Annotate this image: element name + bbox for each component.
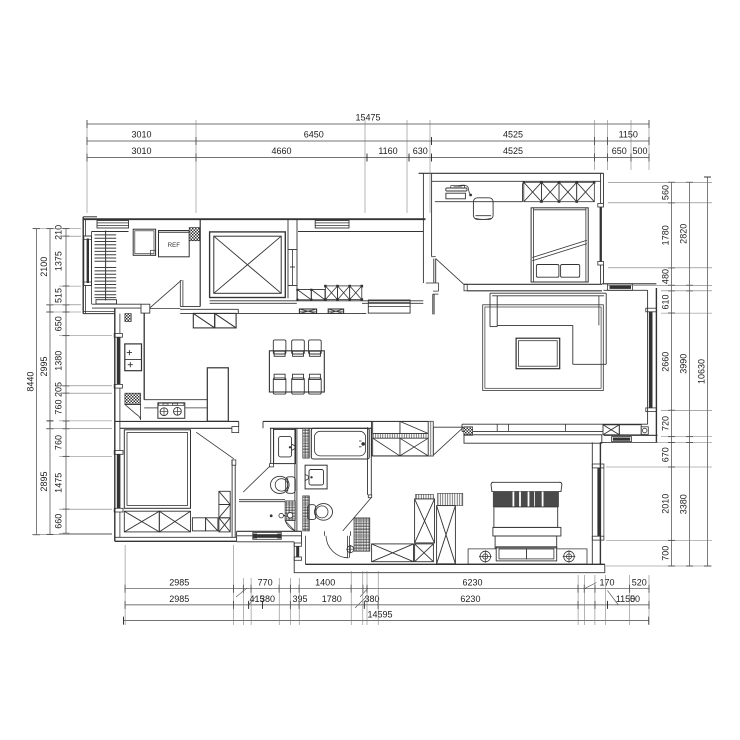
svg-text:700: 700: [661, 546, 671, 561]
svg-text:1150: 1150: [619, 130, 638, 140]
svg-text:3990: 3990: [679, 354, 689, 374]
svg-text:500: 500: [632, 146, 647, 156]
svg-text:170: 170: [599, 578, 614, 588]
svg-text:3380: 3380: [679, 494, 689, 514]
svg-text:1380: 1380: [54, 351, 64, 371]
svg-text:560: 560: [661, 185, 671, 200]
svg-text:1160: 1160: [378, 146, 397, 156]
svg-text:650: 650: [54, 316, 64, 331]
svg-text:670: 670: [661, 447, 671, 462]
svg-text:6230: 6230: [463, 578, 483, 588]
svg-text:15475: 15475: [355, 113, 380, 123]
svg-text:630: 630: [413, 146, 428, 156]
svg-text:4525: 4525: [503, 146, 523, 156]
svg-text:50: 50: [630, 594, 640, 604]
svg-text:1780: 1780: [322, 594, 342, 604]
svg-text:770: 770: [258, 578, 273, 588]
svg-text:10630: 10630: [697, 359, 707, 384]
svg-text:610: 610: [661, 294, 671, 309]
svg-text:1400: 1400: [315, 578, 335, 588]
svg-text:4525: 4525: [503, 130, 523, 140]
svg-text:REF: REF: [168, 242, 181, 249]
svg-text:520: 520: [632, 578, 647, 588]
svg-text:6450: 6450: [304, 130, 324, 140]
svg-text:4660: 4660: [271, 146, 291, 156]
svg-text:650: 650: [612, 146, 627, 156]
svg-text:6230: 6230: [460, 594, 480, 604]
svg-text:3010: 3010: [131, 130, 151, 140]
svg-text:205: 205: [54, 382, 64, 397]
svg-text:14595: 14595: [367, 609, 392, 619]
svg-text:760: 760: [54, 435, 64, 450]
svg-text:2660: 2660: [661, 352, 671, 372]
svg-text:2985: 2985: [169, 578, 189, 588]
svg-text:515: 515: [54, 288, 64, 303]
svg-text:3010: 3010: [131, 146, 151, 156]
svg-text:2995: 2995: [39, 356, 49, 376]
svg-text:8440: 8440: [26, 372, 36, 392]
svg-text:720: 720: [661, 416, 671, 431]
svg-text:395: 395: [292, 594, 307, 604]
svg-text:760: 760: [54, 400, 64, 415]
svg-text:210: 210: [54, 225, 64, 240]
svg-text:1375: 1375: [54, 251, 64, 271]
svg-text:2985: 2985: [169, 594, 189, 604]
svg-text:380: 380: [260, 594, 275, 604]
svg-text:660: 660: [54, 514, 64, 529]
svg-text:480: 480: [661, 269, 671, 284]
svg-text:2895: 2895: [39, 472, 49, 492]
svg-text:2100: 2100: [39, 257, 49, 277]
svg-text:1475: 1475: [54, 473, 64, 493]
svg-text:1780: 1780: [661, 225, 671, 245]
svg-text:2010: 2010: [661, 494, 671, 514]
svg-text:2820: 2820: [679, 224, 689, 244]
